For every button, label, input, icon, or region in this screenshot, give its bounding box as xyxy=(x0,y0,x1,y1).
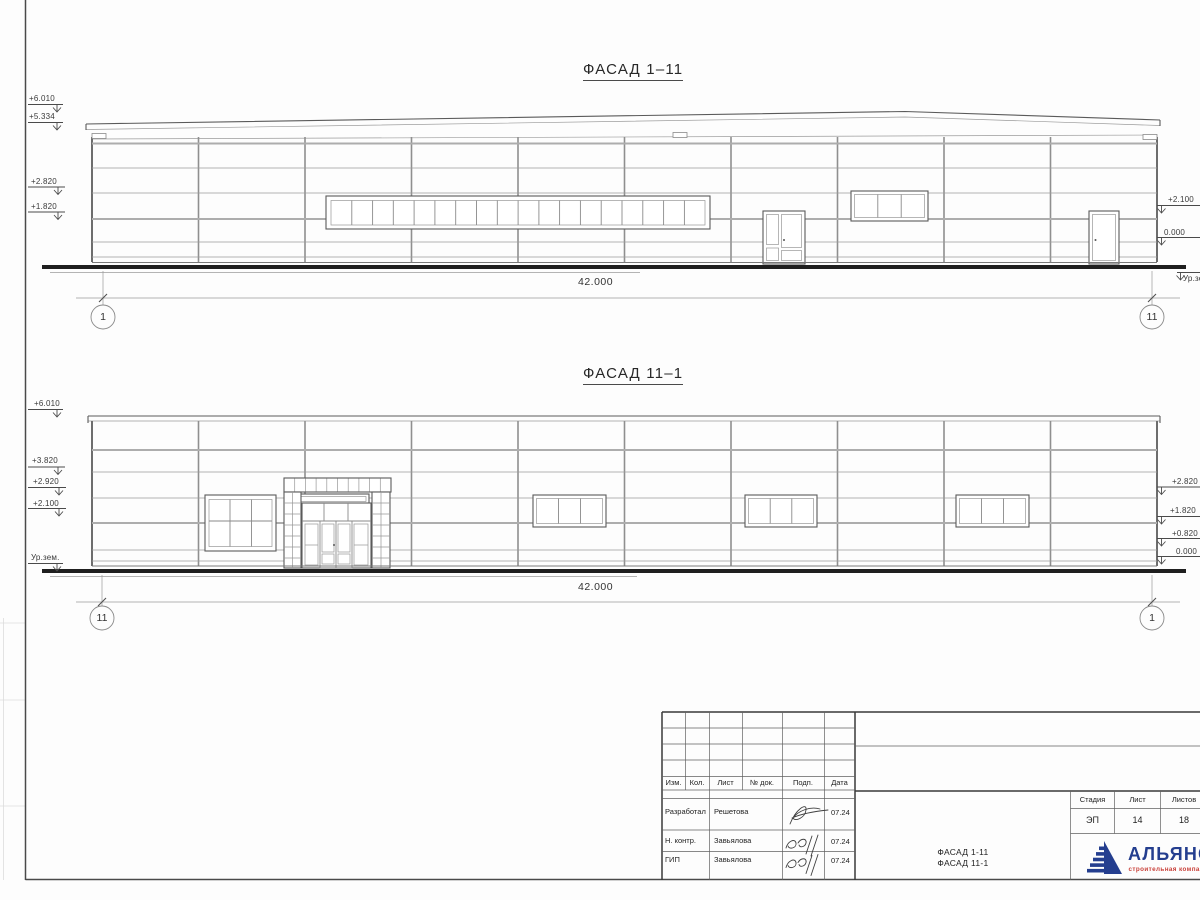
tb-col-kol: Кол. xyxy=(685,779,709,788)
level-mark: +1.820 xyxy=(31,202,57,211)
level-mark: +5.334 xyxy=(29,112,55,121)
signature-developer xyxy=(790,807,828,824)
level-mark: +2.820 xyxy=(1172,477,1198,486)
level-mark: +2.920 xyxy=(33,477,59,486)
company-logo-icon xyxy=(1087,841,1122,874)
facade-top-title: ФАСАД 1–11 xyxy=(583,61,683,81)
company-tagline: строительная компания xyxy=(1129,866,1200,873)
tb-role: Н. контр. xyxy=(665,837,696,846)
level-mark: 0.000 xyxy=(1164,228,1185,237)
facade-top-dimensions xyxy=(76,271,1180,329)
axis-bubble-label: 1 xyxy=(91,311,115,323)
tb-col-list: Лист xyxy=(709,779,742,788)
level-mark: +0.820 xyxy=(1172,529,1198,538)
level-mark: +2.820 xyxy=(31,177,57,186)
door-with-sidelight xyxy=(763,211,805,264)
tb-name: Завьялова xyxy=(714,837,751,846)
axis-bubble-label: 11 xyxy=(1140,311,1164,323)
signature-gip xyxy=(786,855,818,876)
tb-sheet-label: Лист xyxy=(1115,796,1160,805)
tb-name: Завьялова xyxy=(714,856,751,865)
axis-bubble-label: 11 xyxy=(90,612,114,624)
ribbon-window xyxy=(326,196,710,229)
level-mark: +2.100 xyxy=(1168,195,1194,204)
facade-bottom-level-marks xyxy=(28,410,1200,572)
tb-col-izm: Изм. xyxy=(662,779,685,788)
tb-stage-label: Стадия xyxy=(1071,796,1114,805)
single-door xyxy=(1089,211,1119,264)
tb-drawing-title-2: ФАСАД 11-1 xyxy=(857,859,1069,869)
tb-role: ГИП xyxy=(665,856,680,865)
triple-window xyxy=(533,495,606,527)
tb-stage-value: ЭП xyxy=(1071,815,1114,825)
triple-window xyxy=(745,495,817,527)
ground-level-label: Ур.зем. xyxy=(1183,274,1200,283)
tb-col-data: Дата xyxy=(824,779,855,788)
tb-date: 07.24 xyxy=(831,809,850,818)
triple-window xyxy=(956,495,1029,527)
facade-bottom-drawing xyxy=(42,416,1186,577)
signature-checker xyxy=(786,835,818,856)
drawing-linework xyxy=(0,0,1200,900)
tb-sheets-label: Листов xyxy=(1161,796,1200,805)
level-mark: +1.820 xyxy=(1170,506,1196,515)
axis-bubble-label: 1 xyxy=(1140,612,1164,624)
tb-date: 07.24 xyxy=(831,838,850,847)
tb-col-ndok: № док. xyxy=(742,779,782,788)
ground-level-label: Ур.зем. xyxy=(31,553,60,562)
facade-bottom-title: ФАСАД 11–1 xyxy=(583,365,683,385)
level-mark: +2.100 xyxy=(33,499,59,508)
triple-window xyxy=(851,191,928,221)
level-mark: +6.010 xyxy=(29,94,55,103)
tb-sheets-total: 18 xyxy=(1161,815,1200,825)
company-name: АЛЬЯНС xyxy=(1128,844,1200,865)
tb-role: Разработал xyxy=(665,808,706,817)
facade-bottom-dimensions xyxy=(76,575,1180,630)
storefront-window xyxy=(205,495,276,551)
level-mark: +6.010 xyxy=(34,399,60,408)
entrance-portal xyxy=(284,478,391,568)
tb-name: Решетова xyxy=(714,808,748,817)
level-mark: +3.820 xyxy=(32,456,58,465)
tb-sheet-number: 14 xyxy=(1115,815,1160,825)
tb-col-podp: Подп. xyxy=(782,779,824,788)
tb-date: 07.24 xyxy=(831,857,850,866)
sheet-frame xyxy=(0,0,1200,880)
facade-top-drawing xyxy=(42,112,1186,273)
level-mark: 0.000 xyxy=(1176,547,1197,556)
tb-drawing-title-1: ФАСАД 1-11 xyxy=(857,848,1069,858)
dimension-label: 42.000 xyxy=(578,276,613,288)
facade-top-level-marks xyxy=(28,105,1200,281)
dimension-label: 42.000 xyxy=(578,581,613,593)
drawing-sheet: ФАСАД 1–11 +6.010 +5.334 +2.820 +1.820 +… xyxy=(0,0,1200,900)
